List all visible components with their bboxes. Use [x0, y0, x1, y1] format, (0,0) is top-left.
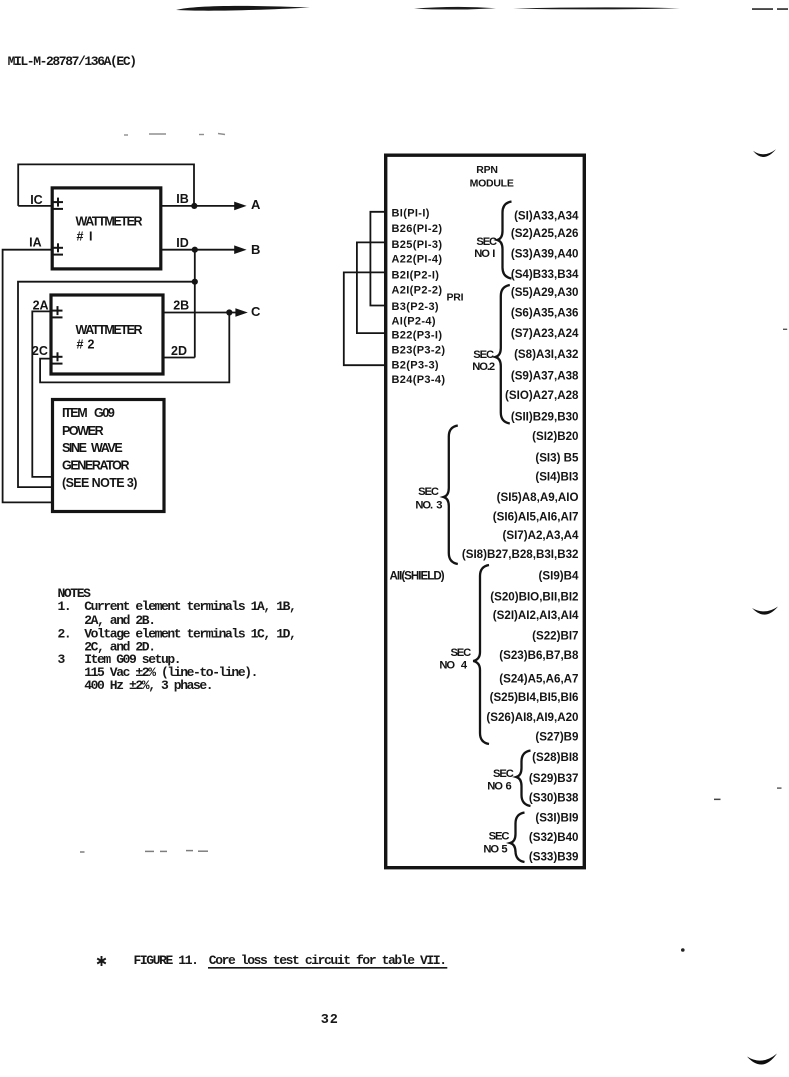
svg-text:NO.2: NO.2 [472, 361, 495, 373]
svg-text:WATTMETER: WATTMETER [76, 323, 143, 337]
svg-text:PRI: PRI [447, 291, 464, 303]
svg-text:B23(P3-2): B23(P3-2) [392, 345, 446, 357]
svg-text:SEC: SEC [418, 486, 439, 498]
svg-text:(SII)B29,B30: (SII)B29,B30 [511, 410, 579, 423]
svg-text:2.: 2. [58, 626, 71, 641]
svg-text:B25(PI-3): B25(PI-3) [392, 239, 443, 251]
svg-text:(SI9)B4: (SI9)B4 [539, 569, 579, 582]
svg-text:NO: NO [474, 248, 490, 260]
svg-text:(SI7)A2,A3,A4: (SI7)A2,A3,A4 [502, 529, 579, 542]
svg-text:(SI6)AI5,AI6,AI7: (SI6)AI5,AI6,AI7 [493, 511, 579, 524]
svg-text:5: 5 [501, 843, 507, 855]
svg-text:(S20)BIO,BII,BI2: (S20)BIO,BII,BI2 [490, 590, 578, 603]
svg-text:6: 6 [506, 780, 512, 792]
svg-text:2A: 2A [33, 299, 49, 313]
svg-text:(S5)A29,A30: (S5)A29,A30 [511, 286, 579, 299]
svg-text:B3(P2-3): B3(P2-3) [392, 301, 439, 313]
svg-text:SEC: SEC [450, 647, 471, 659]
svg-text:(SEE NOTE 3): (SEE NOTE 3) [62, 476, 137, 490]
svg-text:(S6)A35,A36: (S6)A35,A36 [511, 306, 579, 319]
svg-text:SINE: SINE [62, 441, 87, 455]
svg-text:A: A [251, 197, 261, 212]
svg-text:(S33)B39: (S33)B39 [529, 850, 579, 863]
svg-text:(S2I)AI2,AI3,AI4: (S2I)AI2,AI3,AI4 [493, 609, 579, 622]
svg-text:2D: 2D [171, 344, 187, 358]
svg-text:SEC: SEC [489, 831, 510, 843]
svg-text:(S22)BI7: (S22)BI7 [532, 630, 578, 643]
svg-text:(S28)BI8: (S28)BI8 [532, 751, 579, 764]
svg-text:A22(PI-4): A22(PI-4) [392, 254, 443, 266]
svg-text:B22(P3-I): B22(P3-I) [392, 329, 443, 341]
svg-text:(S27)B9: (S27)B9 [535, 731, 579, 744]
svg-text:B26(PI-2): B26(PI-2) [392, 223, 443, 235]
svg-text:Current element terminals 1A,: Current element terminals 1A, 1B, [84, 599, 295, 614]
svg-text:C: C [251, 304, 261, 319]
svg-text:(S4)B33,B34: (S4)B33,B34 [511, 268, 579, 281]
svg-text:32: 32 [321, 1013, 339, 1028]
svg-text:(S3)A39,A40: (S3)A39,A40 [511, 248, 579, 261]
svg-text:(SI5)A8,A9,AIO: (SI5)A8,A9,AIO [497, 491, 579, 504]
svg-text:ID: ID [176, 236, 189, 250]
svg-text:POWER: POWER [62, 424, 104, 438]
svg-text:(SI)A33,A34: (SI)A33,A34 [514, 209, 579, 222]
svg-text:B2I(P2-I): B2I(P2-I) [392, 269, 440, 281]
svg-text:MIL-M-28787/136A(EC): MIL-M-28787/136A(EC) [8, 54, 136, 69]
svg-text:(SI4)BI3: (SI4)BI3 [535, 471, 579, 484]
svg-text:(SIO)A27,A28: (SIO)A27,A28 [505, 389, 579, 402]
svg-text:(S30)B38: (S30)B38 [529, 792, 579, 805]
svg-text:G09: G09 [94, 406, 115, 420]
svg-text:NO: NO [439, 660, 455, 672]
svg-text:MODULE: MODULE [470, 178, 514, 190]
svg-text:400 Hz ±2%, 3 phase.: 400 Hz ±2%, 3 phase. [84, 678, 212, 693]
svg-text:(SI2)B20: (SI2)B20 [532, 430, 578, 443]
svg-text:(S25)BI4,BI5,BI6: (S25)BI4,BI5,BI6 [490, 691, 579, 704]
svg-text:(S2)A25,A26: (S2)A25,A26 [511, 227, 579, 240]
svg-text:(SI8)B27,B28,B3I,B32: (SI8)B27,B28,B3I,B32 [462, 548, 579, 561]
svg-text:SEC: SEC [473, 349, 494, 361]
svg-text:GENERATOR: GENERATOR [62, 458, 129, 472]
svg-text:A2I(P2-2): A2I(P2-2) [392, 285, 443, 297]
svg-text:IB: IB [176, 192, 189, 206]
svg-text:WATTMETER: WATTMETER [76, 215, 143, 229]
svg-text:NO: NO [487, 780, 503, 792]
svg-text:SEC: SEC [493, 768, 514, 780]
svg-text:BI(PI-I): BI(PI-I) [392, 208, 430, 220]
svg-text:2B: 2B [173, 299, 189, 313]
svg-text:(S3I)BI9: (S3I)BI9 [535, 812, 579, 825]
svg-text:(S29)B37: (S29)B37 [529, 772, 579, 785]
svg-text:ITEM: ITEM [62, 406, 87, 420]
svg-text:NO.: NO. [415, 499, 433, 511]
svg-text:2C: 2C [32, 344, 48, 358]
svg-text:B24(P3-4): B24(P3-4) [392, 374, 446, 386]
svg-text:RPN: RPN [476, 164, 497, 176]
svg-text:(S7)A23,A24: (S7)A23,A24 [511, 327, 579, 340]
svg-text:(S24)A5,A6,A7: (S24)A5,A6,A7 [499, 672, 578, 685]
svg-text:(S32)B40: (S32)B40 [529, 831, 579, 844]
svg-text:IA: IA [29, 236, 41, 250]
svg-text:(S23)B6,B7,B8: (S23)B6,B7,B8 [499, 649, 579, 662]
svg-text:Core loss test circuit for tab: Core loss test circuit for table VII. [209, 953, 446, 968]
svg-text:(S9)A37,A38: (S9)A37,A38 [511, 370, 579, 383]
svg-text:WAVE: WAVE [91, 441, 122, 455]
svg-text:NO: NO [483, 843, 499, 855]
svg-text:B: B [251, 242, 260, 257]
svg-text:1.: 1. [58, 599, 71, 614]
svg-text:3: 3 [436, 499, 442, 511]
svg-text:FIGURE 11.: FIGURE 11. [134, 953, 198, 968]
svg-text:IC: IC [30, 193, 43, 207]
svg-text:AII(SHIELD): AII(SHIELD) [390, 570, 445, 583]
svg-text:(SI3) B5: (SI3) B5 [535, 451, 579, 464]
svg-text:B2(P3-3): B2(P3-3) [392, 359, 439, 371]
svg-text:SEC: SEC [476, 236, 497, 248]
svg-text:(S26)AI8,AI9,A20: (S26)AI8,AI9,A20 [486, 711, 578, 724]
svg-text:AI(P2-4): AI(P2-4) [392, 315, 436, 327]
svg-text:(S8)A3I,A32: (S8)A3I,A32 [514, 348, 578, 361]
